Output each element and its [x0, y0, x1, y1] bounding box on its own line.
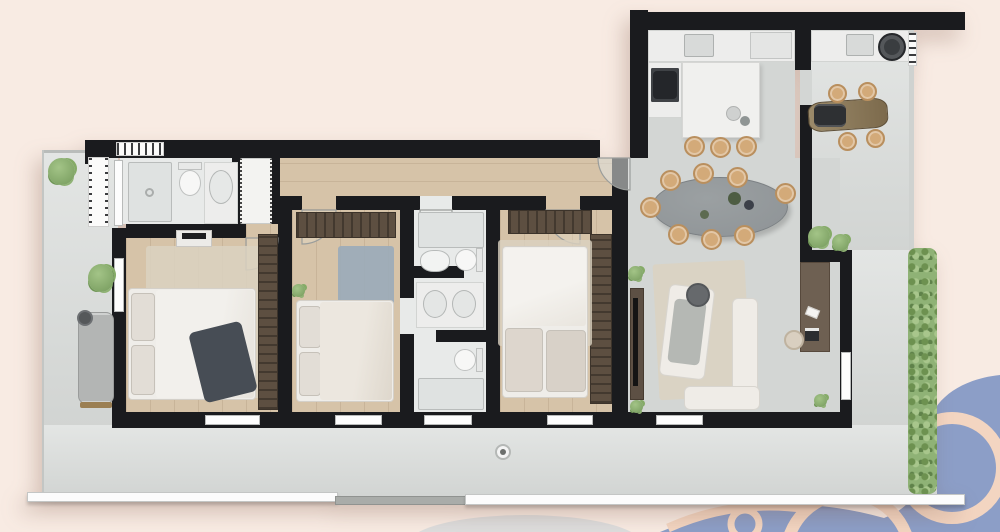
- wall-segment: [278, 196, 292, 412]
- window: [841, 352, 851, 400]
- table-decor: [700, 210, 709, 219]
- corridor-floor: [272, 158, 612, 200]
- sink: [423, 290, 447, 318]
- toilet: [178, 162, 202, 170]
- pillow: [505, 328, 543, 392]
- balcony-edge: [42, 150, 88, 153]
- tabletop-grill: [814, 104, 846, 127]
- shower-drain-icon: [145, 188, 154, 197]
- table-decor: [744, 200, 754, 210]
- terrace-railing: [27, 492, 338, 502]
- small-plant: [814, 394, 827, 407]
- door-opening: [420, 196, 452, 210]
- shrub: [832, 234, 849, 251]
- sofa-section: [684, 386, 760, 410]
- door-opening: [800, 70, 812, 105]
- door-opening: [546, 196, 580, 210]
- terrace-sink: [846, 34, 874, 56]
- bar-stool: [828, 84, 847, 103]
- window: [335, 415, 382, 425]
- cooktop: [651, 68, 679, 102]
- wall-segment: [800, 250, 852, 262]
- wardrobe: [590, 234, 612, 404]
- table-decor: [728, 192, 741, 205]
- potted-plant: [48, 158, 75, 185]
- toilet-tank: [476, 348, 483, 372]
- dining-chair: [640, 197, 661, 218]
- toilet-tank: [476, 248, 483, 272]
- wall-segment: [612, 158, 628, 412]
- pillow: [299, 352, 321, 396]
- dining-chair: [734, 225, 755, 246]
- pillow: [546, 330, 586, 392]
- pillow: [299, 306, 321, 348]
- terrace-railing: [465, 494, 965, 505]
- wall-segment: [630, 10, 648, 158]
- bed-duvet: [320, 302, 392, 400]
- dining-chair: [775, 183, 796, 204]
- toilet-bowl: [454, 349, 476, 371]
- hedge: [908, 248, 937, 494]
- sink: [420, 250, 450, 272]
- island-decor: [726, 106, 741, 121]
- kitchen-island: [682, 62, 760, 138]
- window: [114, 160, 123, 226]
- bar-stool: [866, 129, 885, 148]
- island-stool: [736, 136, 757, 157]
- tv-icon: [633, 298, 638, 386]
- window: [114, 258, 124, 312]
- wall-segment: [795, 30, 811, 70]
- wardrobe: [258, 234, 278, 410]
- wall-segment: [112, 228, 126, 412]
- wardrobe: [508, 210, 592, 234]
- pillow: [131, 345, 155, 395]
- window: [205, 415, 260, 425]
- shower: [418, 378, 484, 410]
- apartment-plan: [0, 0, 1000, 532]
- window: [424, 415, 472, 425]
- island-decor: [740, 116, 750, 126]
- pillow: [131, 293, 155, 341]
- small-plant: [630, 400, 643, 413]
- tv-icon: [182, 233, 206, 239]
- toilet-bowl: [179, 170, 201, 196]
- desk-chair: [784, 330, 804, 350]
- small-plant: [628, 266, 643, 281]
- fridge: [750, 32, 792, 59]
- dining-chair: [727, 167, 748, 188]
- side-table: [77, 310, 93, 326]
- sink: [209, 170, 233, 204]
- window-hatch: [908, 32, 917, 66]
- kitchen-sink: [684, 34, 714, 57]
- bar-stool: [838, 132, 857, 151]
- lounge-chair-base: [80, 402, 112, 408]
- right-terrace-floor: [852, 250, 909, 425]
- dining-chair: [660, 170, 681, 191]
- dining-chair: [668, 224, 689, 245]
- wall-segment: [630, 12, 965, 30]
- closet-hatch-area: [240, 158, 272, 224]
- window: [547, 415, 593, 425]
- round-grill: [878, 33, 906, 61]
- shrub: [808, 226, 830, 248]
- wall-segment: [272, 158, 280, 224]
- floor-plan-scene: [0, 0, 1000, 532]
- dining-chair: [693, 163, 714, 184]
- wall-segment: [436, 330, 486, 342]
- door-opening: [302, 196, 336, 210]
- shower: [418, 212, 484, 248]
- dining-chair: [701, 229, 722, 250]
- main-terrace-floor: [42, 425, 937, 497]
- toilet-bowl: [455, 249, 477, 271]
- window-hatch: [116, 142, 164, 156]
- sink: [452, 290, 476, 318]
- wall-segment: [840, 262, 852, 428]
- folding-door: [88, 157, 109, 227]
- window: [656, 415, 703, 425]
- door-opening: [400, 298, 414, 334]
- floor-light-core: [500, 449, 506, 455]
- wardrobe: [296, 212, 396, 238]
- bed-duvet: [504, 248, 586, 326]
- terrace-step: [335, 496, 467, 505]
- bar-stool: [858, 82, 877, 101]
- island-stool: [710, 137, 731, 158]
- small-plant: [292, 284, 305, 297]
- island-stool: [684, 136, 705, 157]
- potted-plant: [88, 264, 114, 292]
- balcony-edge-left: [42, 150, 44, 497]
- laptop-icon: [805, 328, 819, 341]
- coffee-table: [686, 283, 710, 307]
